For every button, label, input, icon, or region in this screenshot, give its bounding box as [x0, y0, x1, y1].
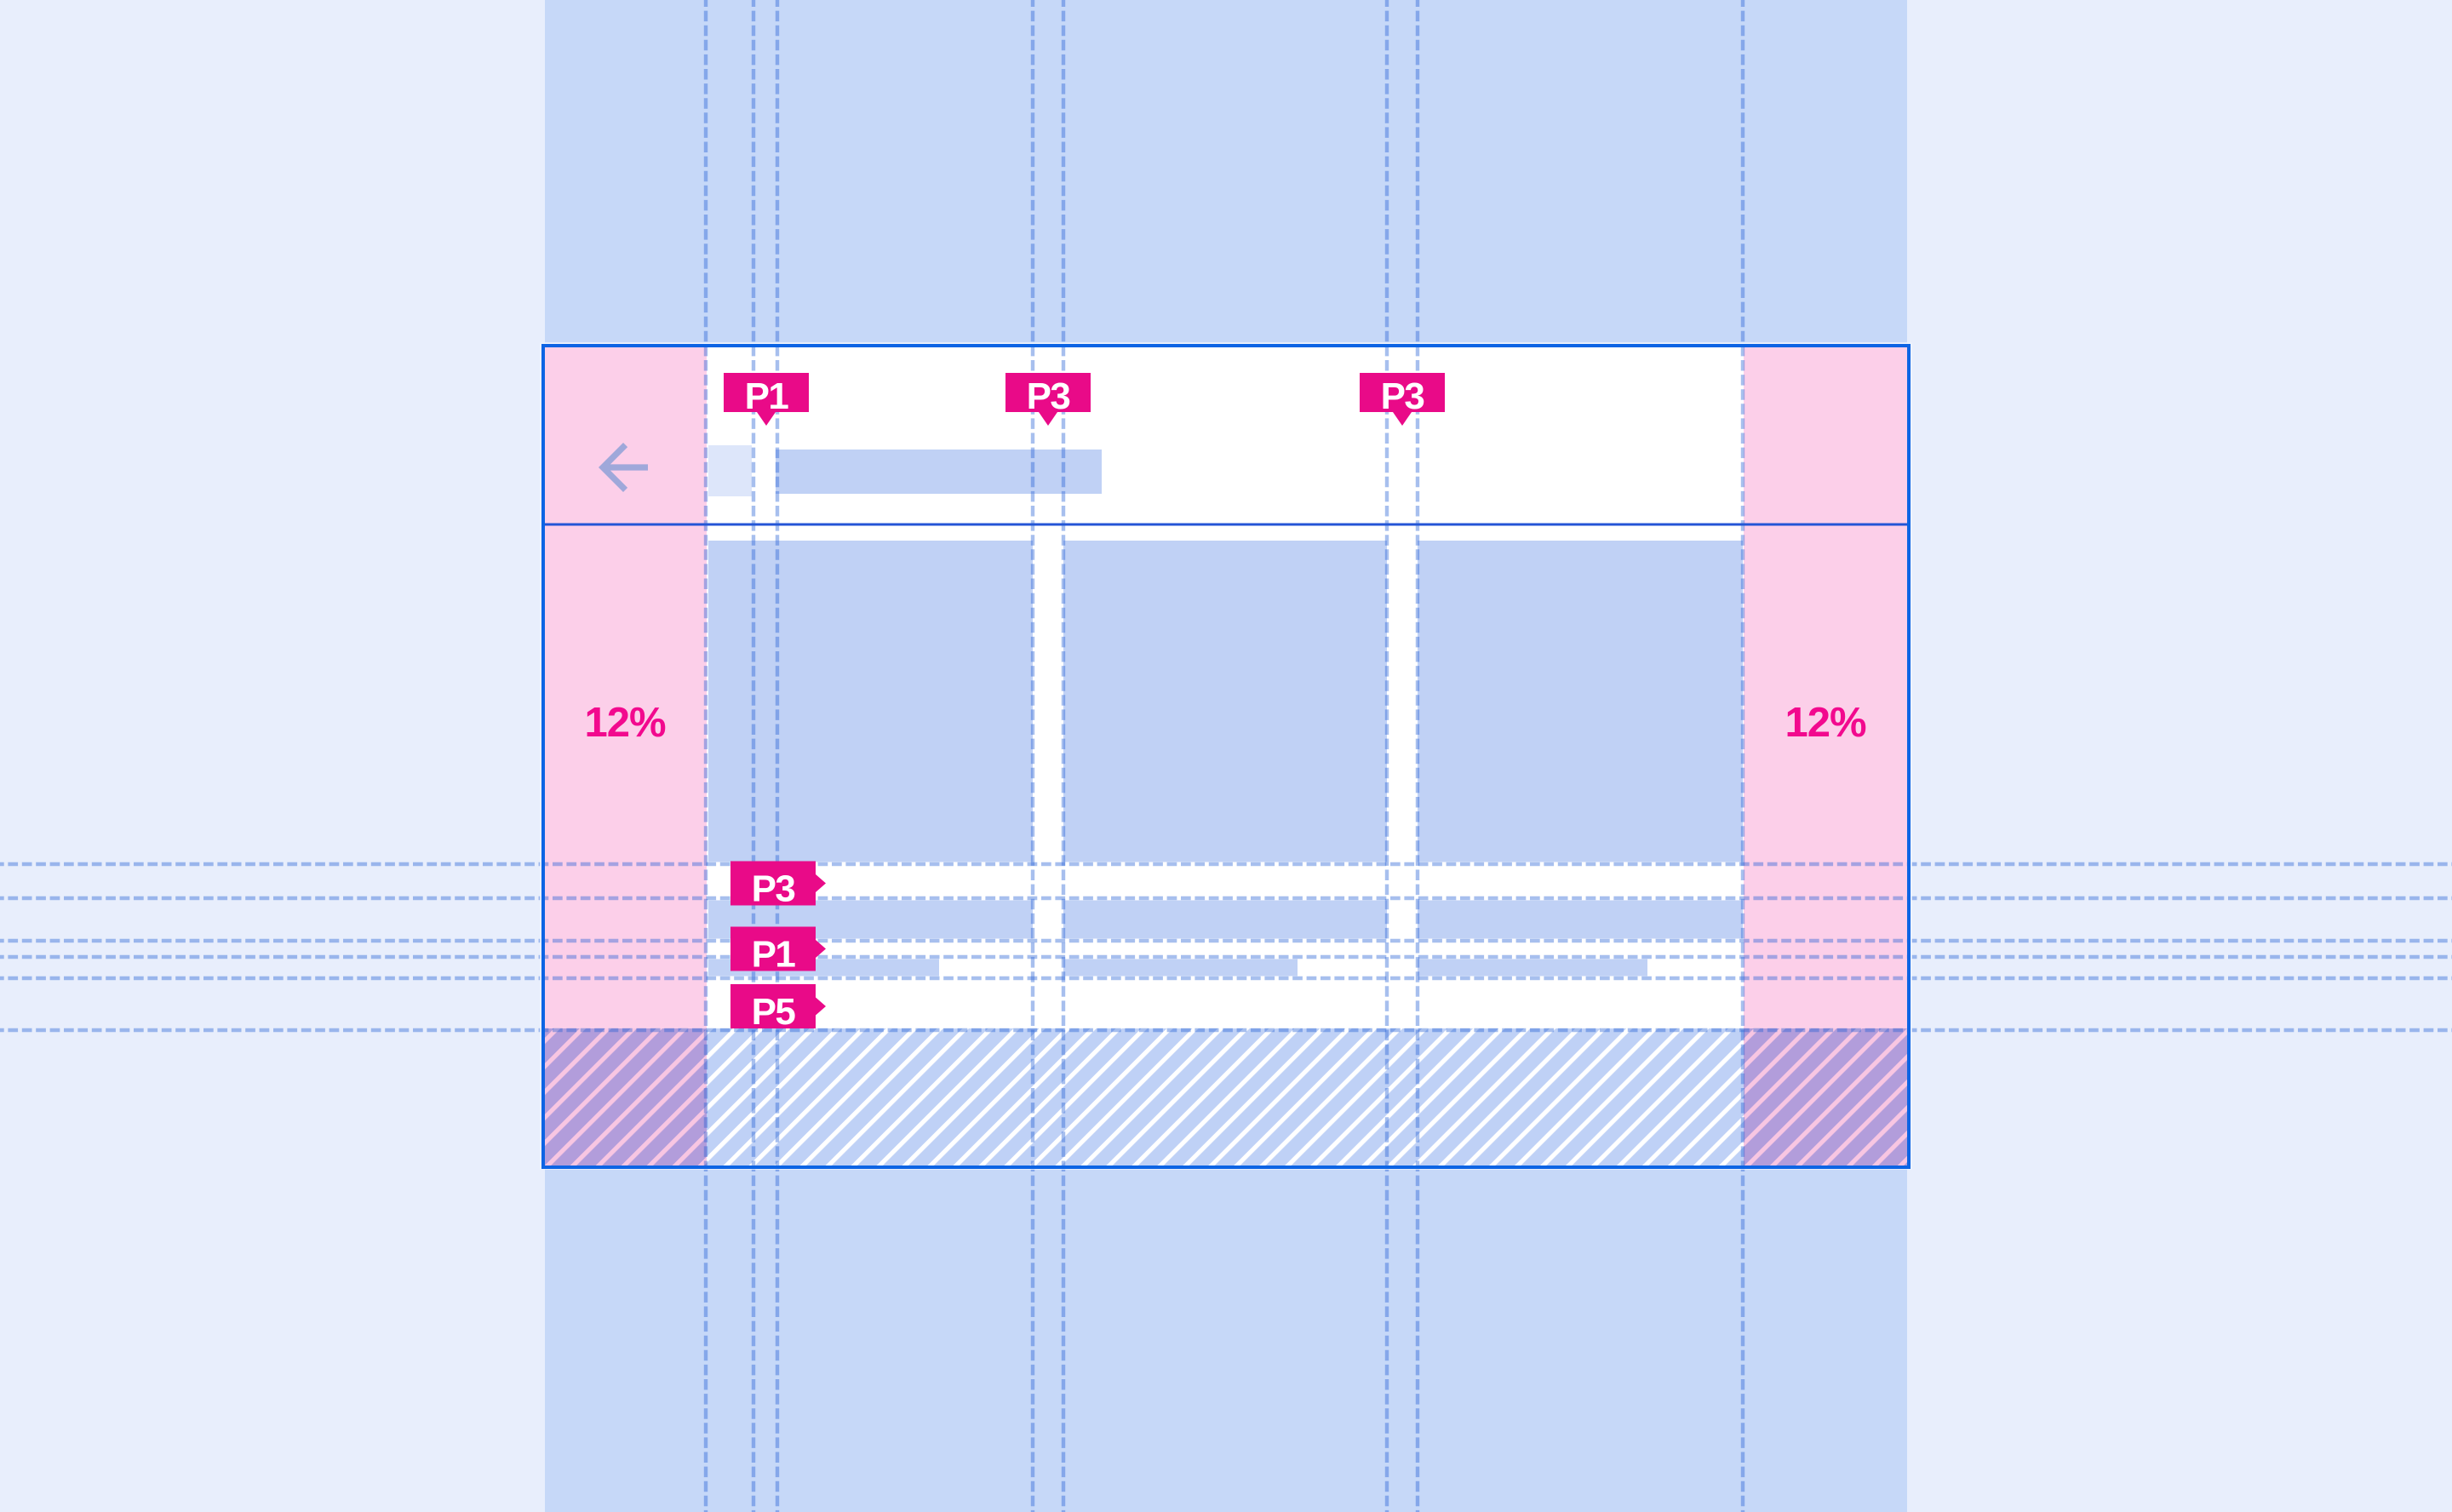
- svg-text:12%: 12%: [584, 700, 666, 746]
- svg-text:P5: P5: [752, 991, 796, 1033]
- svg-text:P1: P1: [752, 934, 796, 976]
- svg-text:12%: 12%: [1785, 700, 1866, 746]
- svg-text:P3: P3: [1027, 375, 1070, 417]
- svg-text:P3: P3: [1381, 375, 1424, 417]
- svg-text:P3: P3: [752, 868, 795, 910]
- svg-text:P1: P1: [745, 375, 789, 417]
